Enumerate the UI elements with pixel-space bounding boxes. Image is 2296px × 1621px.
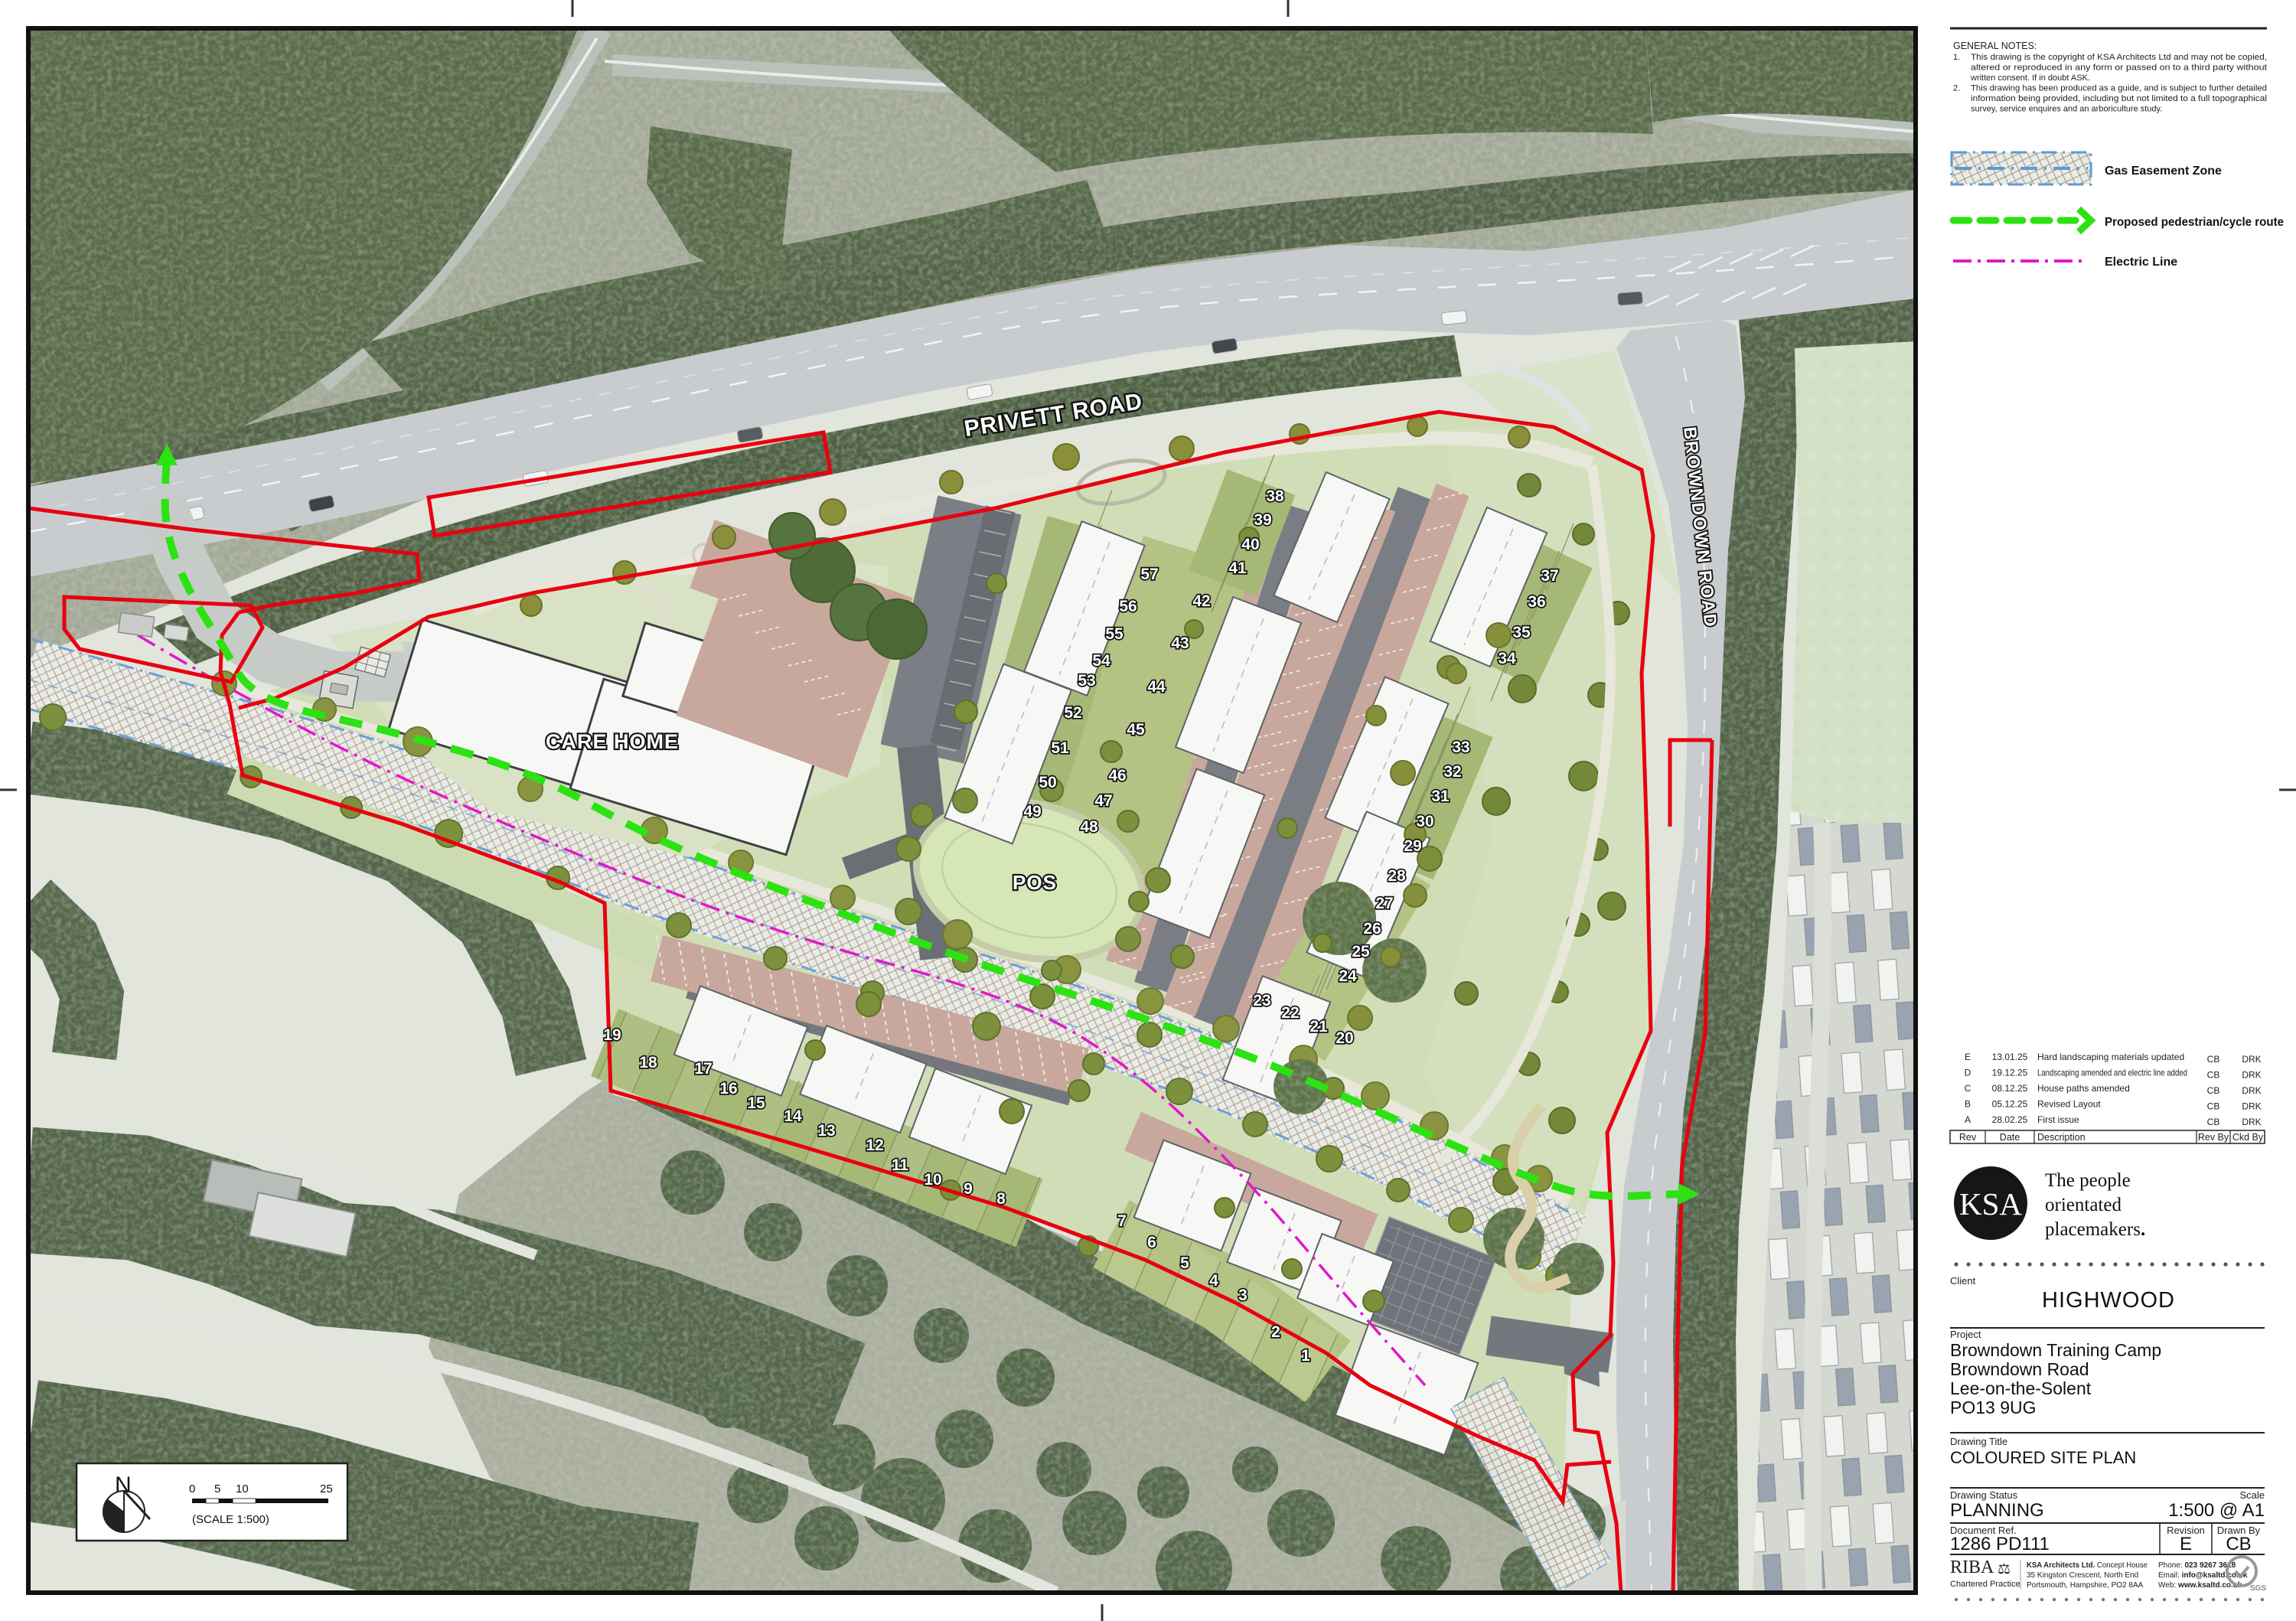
svg-text:placemakers.: placemakers. xyxy=(2045,1219,2145,1240)
svg-text:05.12.25: 05.12.25 xyxy=(1992,1099,2028,1110)
svg-text:1:500 @ A1: 1:500 @ A1 xyxy=(2168,1500,2265,1521)
svg-text:51: 51 xyxy=(1051,739,1069,757)
svg-text:PO13 9UG: PO13 9UG xyxy=(1950,1398,2037,1417)
svg-text:Gas Easement Zone: Gas Easement Zone xyxy=(2105,165,2222,178)
svg-text:Description: Description xyxy=(2037,1132,2086,1143)
svg-text:24: 24 xyxy=(1339,967,1357,985)
svg-text:31: 31 xyxy=(1431,788,1450,805)
svg-text:CB: CB xyxy=(2207,1101,2220,1112)
svg-text:56: 56 xyxy=(1119,598,1137,615)
svg-text:E: E xyxy=(2180,1534,2192,1554)
svg-text:0: 0 xyxy=(189,1482,195,1495)
svg-text:1: 1 xyxy=(1301,1347,1310,1365)
svg-text:Portsmouth, Hampshire, PO2 8AA: Portsmouth, Hampshire, PO2 8AA xyxy=(2027,1581,2144,1590)
svg-text:Proposed pedestrian/cycle rout: Proposed pedestrian/cycle route xyxy=(2105,216,2284,229)
svg-text:Phone: 023 9267 3618: Phone: 023 9267 3618 xyxy=(2158,1561,2236,1570)
svg-text:52: 52 xyxy=(1064,704,1081,722)
svg-text:Lee-on-the-Solent: Lee-on-the-Solent xyxy=(1950,1378,2092,1398)
svg-text:42: 42 xyxy=(1192,592,1210,610)
svg-text:Electric Line: Electric Line xyxy=(2105,256,2177,269)
svg-text:13.01.25: 13.01.25 xyxy=(1992,1052,2028,1062)
svg-text:36: 36 xyxy=(1528,593,1545,611)
svg-text:7: 7 xyxy=(1117,1212,1127,1230)
svg-text:25: 25 xyxy=(320,1482,333,1495)
svg-text:43: 43 xyxy=(1171,634,1189,652)
svg-text:33: 33 xyxy=(1452,739,1469,756)
svg-text:35 Kingston Crescent, North En: 35 Kingston Crescent, North End xyxy=(2027,1571,2138,1580)
svg-text:A: A xyxy=(1965,1114,1971,1125)
svg-text:The people: The people xyxy=(2045,1170,2131,1191)
svg-text:08.12.25: 08.12.25 xyxy=(1992,1083,2028,1094)
svg-text:HIGHWOOD: HIGHWOOD xyxy=(2042,1288,2175,1313)
svg-text:DRK: DRK xyxy=(2242,1085,2261,1096)
svg-text:Email: info@ksaltd.co.uk: Email: info@ksaltd.co.uk xyxy=(2158,1571,2248,1580)
svg-text:orientated: orientated xyxy=(2045,1195,2122,1215)
svg-text:10: 10 xyxy=(236,1482,249,1495)
svg-text:8: 8 xyxy=(996,1190,1006,1208)
svg-text:PLANNING: PLANNING xyxy=(1950,1500,2044,1521)
svg-text:32: 32 xyxy=(1443,763,1461,781)
svg-text:47: 47 xyxy=(1094,792,1112,810)
svg-text:Web: www.ksaltd.co.uk: Web: www.ksaltd.co.uk xyxy=(2158,1581,2242,1590)
svg-text:21: 21 xyxy=(1309,1018,1328,1036)
svg-text:Date: Date xyxy=(2000,1132,2020,1143)
svg-text:altered or reproduced in a: altered or reproduced in any form or pas… xyxy=(1971,64,2267,73)
svg-text:44: 44 xyxy=(1147,678,1166,696)
svg-text:Hard landscaping materials upd: Hard landscaping materials updated xyxy=(2037,1052,2184,1062)
svg-text:17: 17 xyxy=(694,1060,712,1078)
svg-text:DRK: DRK xyxy=(2242,1054,2261,1065)
svg-text:48: 48 xyxy=(1080,818,1098,836)
svg-text:Project: Project xyxy=(1950,1329,1981,1340)
svg-text:15: 15 xyxy=(747,1094,765,1112)
svg-text:D: D xyxy=(1965,1068,1971,1078)
svg-text:survey, service enquires and a: survey, service enquires and an arboricu… xyxy=(1971,105,2162,114)
svg-text:Client: Client xyxy=(1950,1275,1976,1287)
svg-text:E: E xyxy=(1965,1052,1971,1062)
svg-text:DRK: DRK xyxy=(2242,1101,2261,1112)
svg-text:23: 23 xyxy=(1253,992,1270,1009)
svg-text:information being provided, in: information being provided, including bu… xyxy=(1971,94,2267,103)
svg-text:28.02.25: 28.02.25 xyxy=(1992,1114,2028,1125)
svg-text:13: 13 xyxy=(817,1122,835,1140)
svg-text:Landscaping amended and electr: Landscaping amended and electric line ad… xyxy=(2037,1068,2187,1078)
svg-text:Revised Layout: Revised Layout xyxy=(2037,1099,2101,1110)
svg-text:1.: 1. xyxy=(1953,53,1960,62)
svg-text:19: 19 xyxy=(603,1026,621,1044)
svg-text:50: 50 xyxy=(1039,774,1056,791)
svg-text:Ckd By: Ckd By xyxy=(2232,1132,2264,1143)
svg-text:53: 53 xyxy=(1078,672,1095,690)
svg-text:POS: POS xyxy=(1013,871,1057,894)
svg-text:B: B xyxy=(1965,1099,1971,1110)
svg-text:N: N xyxy=(115,1473,132,1498)
svg-text:Drawing Status: Drawing Status xyxy=(1950,1489,2018,1501)
svg-text:22: 22 xyxy=(1281,1004,1299,1022)
svg-text:written consent. If in doubt A: written consent. If in doubt ASK. xyxy=(1970,73,2090,83)
svg-text:11: 11 xyxy=(892,1156,909,1174)
svg-text:(SCALE 1:500): (SCALE 1:500) xyxy=(192,1513,269,1526)
svg-text:10: 10 xyxy=(924,1171,941,1189)
svg-text:Rev: Rev xyxy=(1959,1132,1977,1143)
svg-text:35: 35 xyxy=(1512,624,1531,641)
svg-text:CB: CB xyxy=(2207,1054,2220,1065)
svg-text:46: 46 xyxy=(1108,767,1126,784)
svg-text:5: 5 xyxy=(1180,1254,1189,1272)
svg-text:SGS: SGS xyxy=(2250,1584,2266,1593)
svg-text:41: 41 xyxy=(1228,559,1247,577)
svg-text:40: 40 xyxy=(1241,536,1259,553)
svg-text:First issue: First issue xyxy=(2037,1114,2079,1125)
svg-text:CB: CB xyxy=(2226,1534,2251,1554)
svg-text:KSA Architects Ltd. Concept Ho: KSA Architects Ltd. Concept House xyxy=(2027,1561,2148,1570)
svg-text:30: 30 xyxy=(1416,813,1433,830)
svg-text:⚖: ⚖ xyxy=(1998,1561,2011,1577)
svg-text:Rev By: Rev By xyxy=(2198,1132,2229,1143)
svg-text:COLOURED SITE PLAN: COLOURED SITE PLAN xyxy=(1950,1448,2136,1467)
svg-text:45: 45 xyxy=(1127,721,1145,739)
svg-text:C: C xyxy=(1965,1083,1971,1094)
svg-text:Scale: Scale xyxy=(2239,1489,2265,1501)
svg-text:This drawing has been produced: This drawing has been produced as a guid… xyxy=(1971,84,2267,93)
svg-text:28: 28 xyxy=(1388,867,1406,885)
svg-text:House paths amended: House paths amended xyxy=(2037,1083,2130,1094)
svg-text:14: 14 xyxy=(784,1107,802,1125)
svg-text:2.: 2. xyxy=(1953,84,1960,93)
svg-text:38: 38 xyxy=(1266,488,1284,505)
svg-text:34: 34 xyxy=(1498,650,1516,667)
svg-text:GENERAL NOTES:: GENERAL NOTES: xyxy=(1953,41,2037,51)
svg-text:55: 55 xyxy=(1105,625,1124,643)
svg-text:49: 49 xyxy=(1023,803,1041,820)
svg-text:CB: CB xyxy=(2207,1117,2220,1127)
svg-text:CARE HOME: CARE HOME xyxy=(546,730,679,753)
svg-text:Drawing Title: Drawing Title xyxy=(1950,1436,2007,1447)
svg-text:18: 18 xyxy=(639,1054,657,1071)
svg-text:37: 37 xyxy=(1541,567,1558,585)
svg-text:1286 PD111: 1286 PD111 xyxy=(1950,1534,2050,1554)
svg-text:5: 5 xyxy=(214,1482,220,1495)
svg-text:CB: CB xyxy=(2207,1070,2220,1081)
svg-text:4: 4 xyxy=(1209,1272,1218,1290)
svg-text:9: 9 xyxy=(964,1180,973,1198)
svg-text:DRK: DRK xyxy=(2242,1117,2261,1127)
svg-text:Chartered Practice: Chartered Practice xyxy=(1950,1580,2020,1589)
svg-text:6: 6 xyxy=(1147,1234,1156,1251)
svg-text:29: 29 xyxy=(1404,837,1421,855)
svg-text:KSA: KSA xyxy=(1959,1186,2022,1221)
svg-text:39: 39 xyxy=(1254,511,1271,529)
svg-text:Browndown Training Camp: Browndown Training Camp xyxy=(1950,1340,2161,1360)
svg-text:57: 57 xyxy=(1140,566,1158,583)
svg-text:54: 54 xyxy=(1092,652,1110,670)
svg-text:DRK: DRK xyxy=(2242,1070,2261,1081)
svg-text:RIBA: RIBA xyxy=(1950,1557,1994,1577)
svg-text:CB: CB xyxy=(2207,1085,2220,1096)
svg-text:19.12.25: 19.12.25 xyxy=(1992,1068,2028,1078)
svg-text:3: 3 xyxy=(1238,1287,1247,1304)
svg-text:Browndown Road: Browndown Road xyxy=(1950,1359,2089,1379)
svg-text:25: 25 xyxy=(1352,943,1370,961)
svg-text:2: 2 xyxy=(1271,1323,1280,1341)
svg-text:This drawing is the copyright: This drawing is the copyright of KSA Arc… xyxy=(1971,53,2267,62)
svg-text:26: 26 xyxy=(1363,920,1381,938)
svg-text:27: 27 xyxy=(1375,895,1393,912)
svg-text:16: 16 xyxy=(719,1080,737,1098)
svg-text:12: 12 xyxy=(866,1137,883,1154)
svg-text:20: 20 xyxy=(1336,1029,1353,1047)
